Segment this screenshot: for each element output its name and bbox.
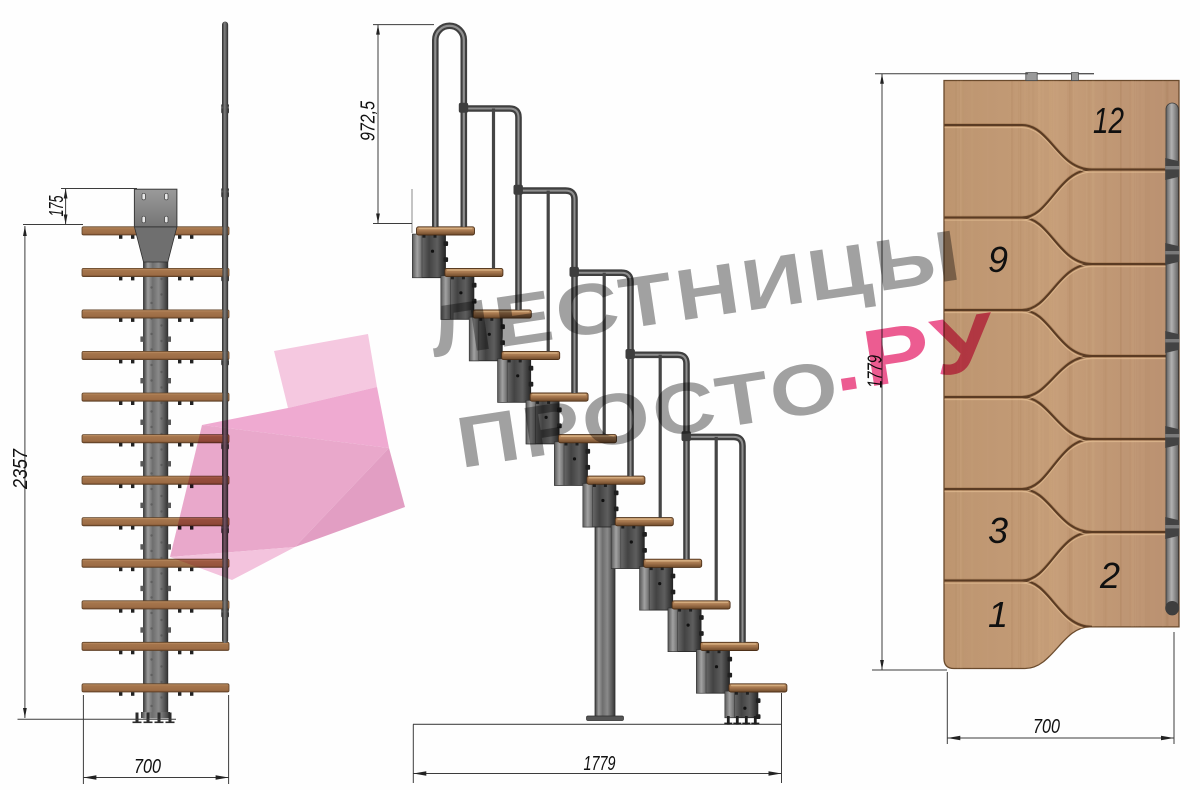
svg-text:1779: 1779 — [584, 753, 616, 775]
svg-text:972,5: 972,5 — [358, 100, 380, 141]
svg-text:1: 1 — [988, 594, 1008, 635]
svg-text:175: 175 — [46, 195, 68, 217]
svg-text:2: 2 — [1099, 555, 1120, 596]
svg-text:12: 12 — [1093, 100, 1124, 141]
svg-text:9: 9 — [988, 239, 1008, 280]
svg-text:2357: 2357 — [10, 448, 32, 490]
svg-text:700: 700 — [134, 756, 161, 778]
svg-text:3: 3 — [988, 510, 1008, 551]
svg-text:700: 700 — [1033, 716, 1060, 738]
